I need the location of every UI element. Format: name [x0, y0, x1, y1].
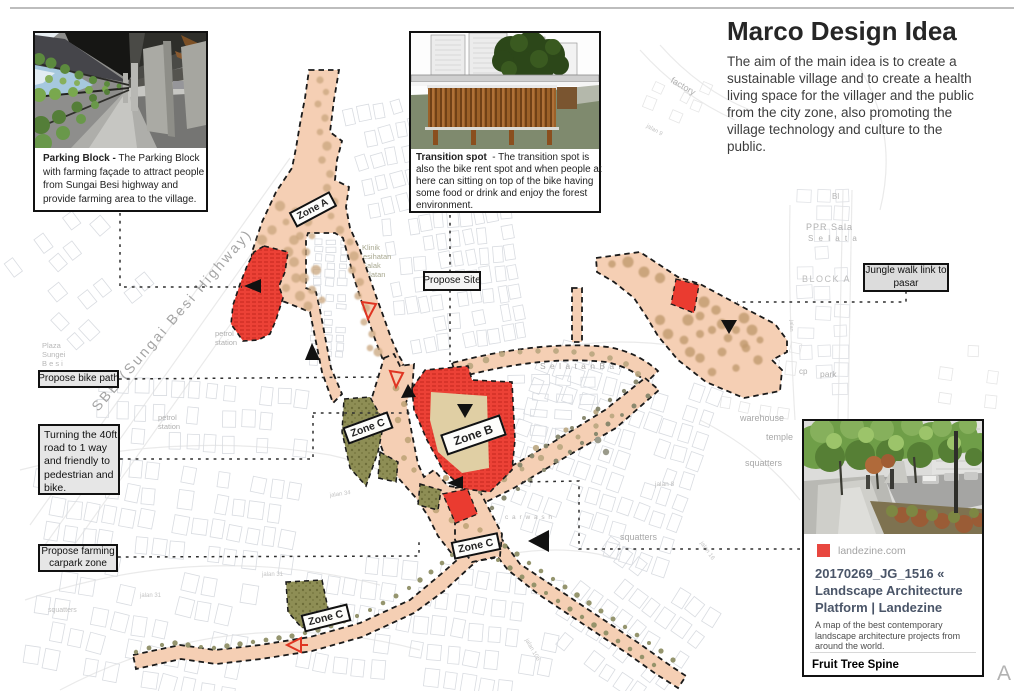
- svg-text:Sungei: Sungei: [42, 350, 66, 359]
- svg-text:BLOCK A: BLOCK A: [802, 274, 851, 284]
- svg-text:petrol: petrol: [158, 413, 177, 422]
- svg-text:PPR Sala: PPR Sala: [806, 222, 853, 232]
- svg-text:Bl: Bl: [832, 192, 839, 201]
- svg-text:jalan 8: jalan 8: [654, 481, 675, 488]
- svg-text:station: station: [215, 338, 237, 347]
- svg-text:squatters: squatters: [745, 458, 783, 468]
- svg-text:Plaza: Plaza: [42, 341, 62, 350]
- svg-text:park: park: [820, 369, 837, 379]
- svg-text:cp: cp: [799, 367, 808, 376]
- svg-text:jalan 31: jalan 31: [261, 572, 284, 578]
- svg-text:station: station: [158, 422, 180, 431]
- svg-text:warehouse: warehouse: [739, 413, 784, 423]
- svg-text:S e l a t a: S e l a t a: [808, 234, 858, 243]
- svg-text:petrol: petrol: [215, 329, 234, 338]
- svg-text:Klinik: Klinik: [362, 243, 380, 252]
- svg-text:temple: temple: [766, 432, 793, 442]
- svg-text:squatters: squatters: [48, 607, 77, 614]
- svg-text:c a r w a s h: c a r w a s h: [505, 514, 553, 521]
- svg-text:B e s i: B e s i: [42, 359, 63, 368]
- svg-text:jalan: jalan: [788, 319, 794, 332]
- svg-text:squatters: squatters: [620, 532, 658, 542]
- svg-text:jalan 31: jalan 31: [139, 593, 162, 599]
